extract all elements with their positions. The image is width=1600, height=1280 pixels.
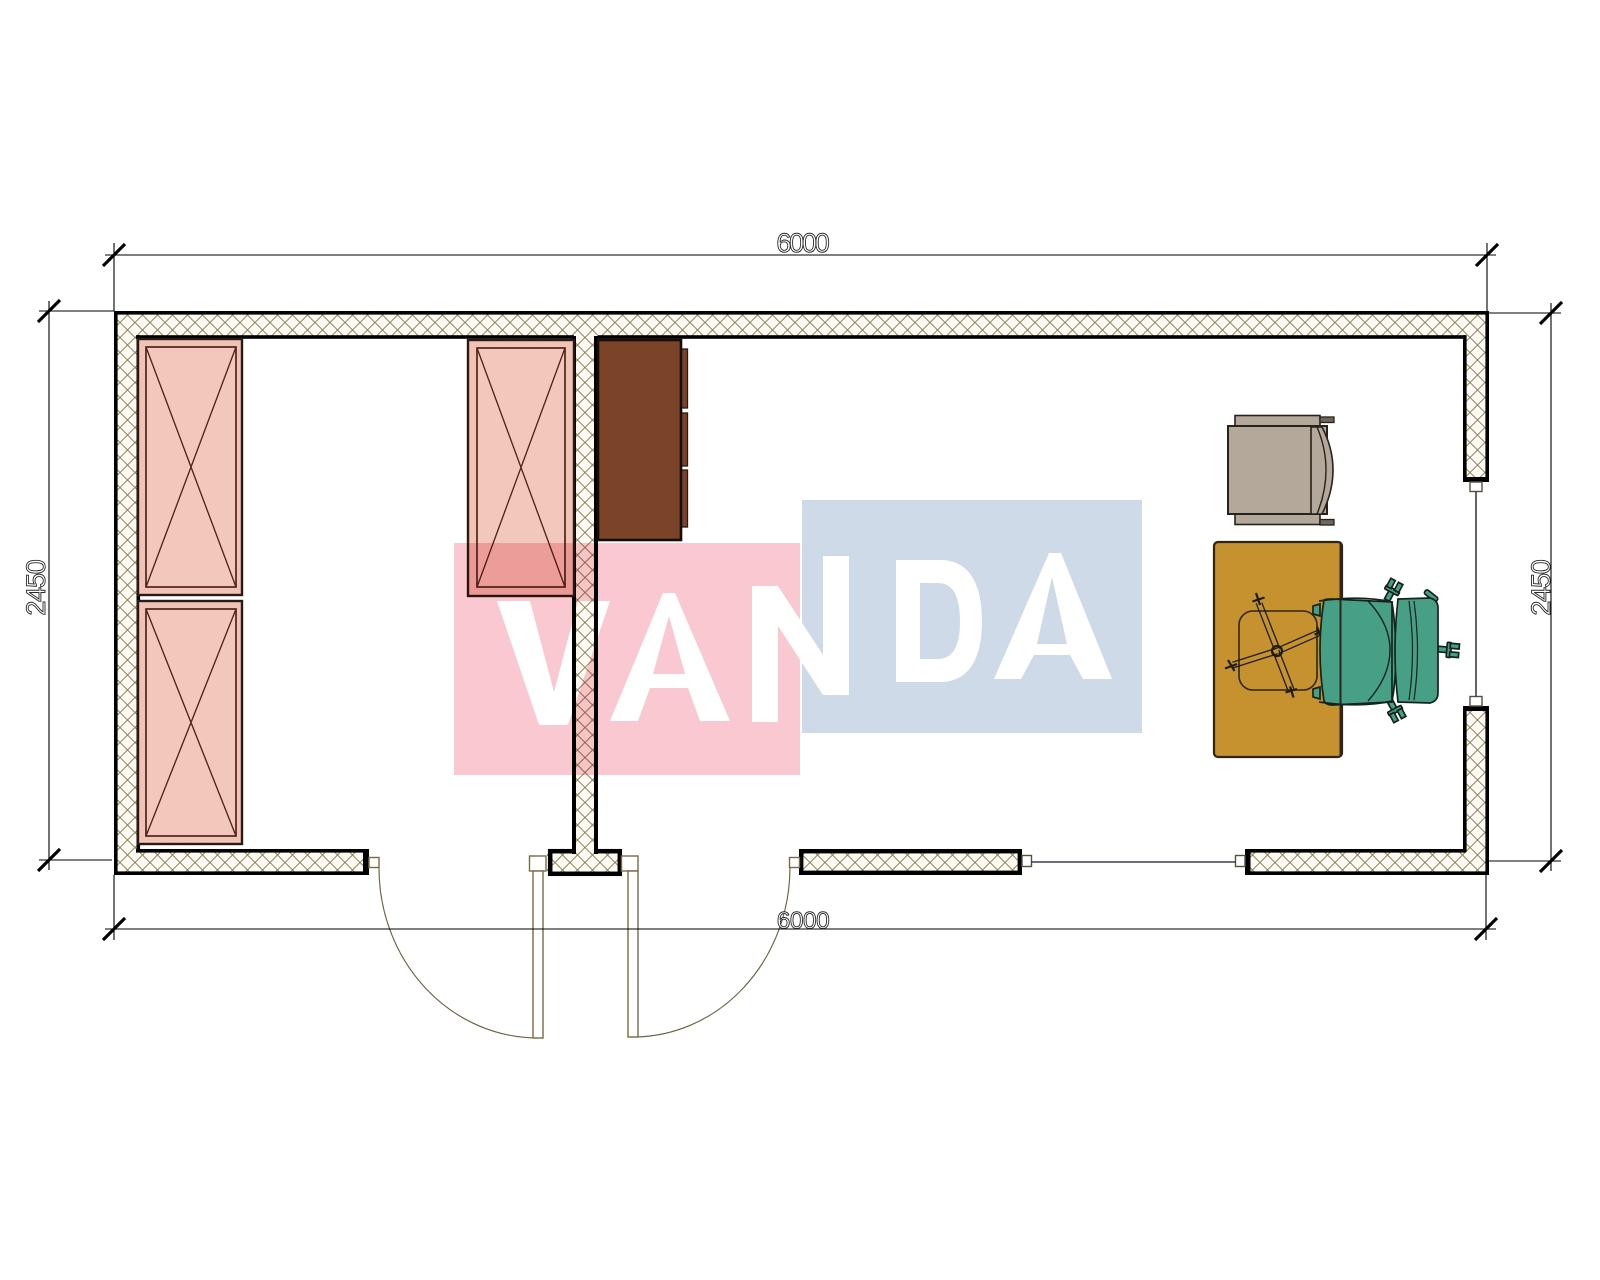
svg-text:6000: 6000 [777, 908, 830, 935]
svg-text:2450: 2450 [1526, 560, 1556, 615]
svg-text:6000: 6000 [776, 228, 828, 258]
svg-text:2450: 2450 [21, 560, 51, 615]
